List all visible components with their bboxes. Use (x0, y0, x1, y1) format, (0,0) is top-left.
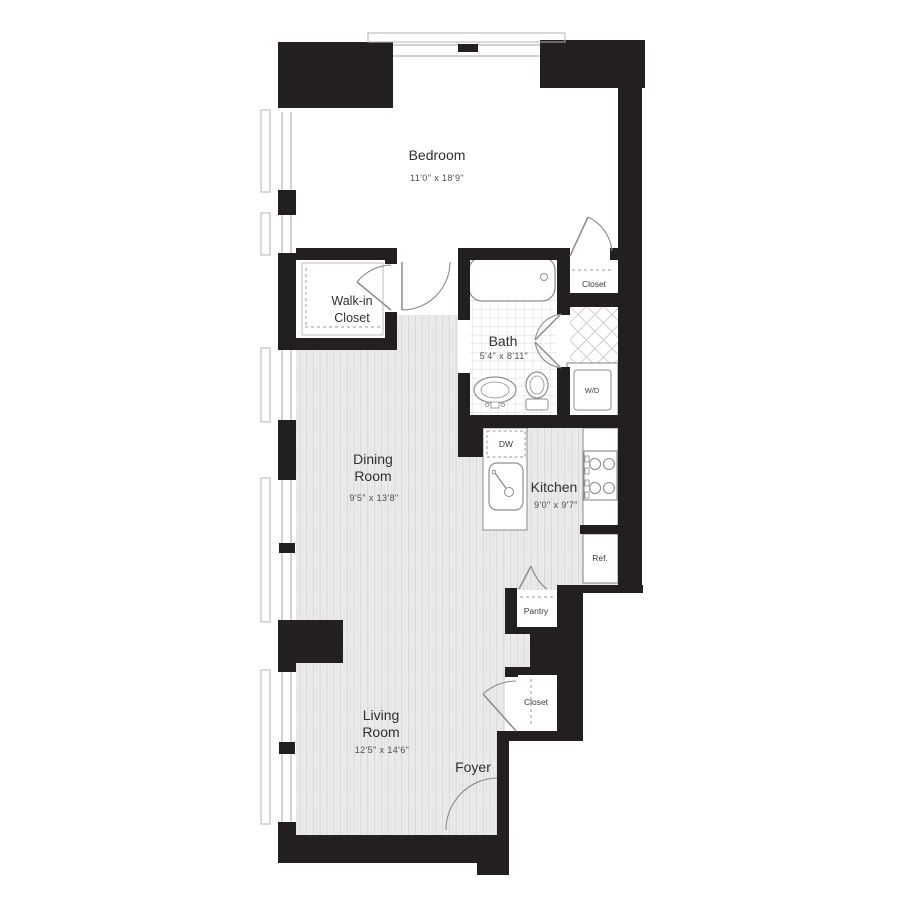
stove-icon (584, 451, 617, 500)
refrigerator-label: Ref. (592, 553, 608, 563)
bedroom-label: Bedroom (409, 147, 466, 163)
kitchen-label: Kitchen (531, 479, 578, 495)
left-window-3 (261, 348, 291, 422)
bathtub-icon (469, 257, 555, 301)
window-mullion (279, 742, 295, 754)
dining-label-2: Room (354, 468, 391, 484)
pantry-label: Pantry (524, 606, 549, 616)
left-window-5 (261, 670, 295, 824)
left-window-4 (261, 478, 295, 622)
bedroom-door (402, 262, 450, 310)
living-dims: 12'5" x 14'6" (355, 745, 410, 755)
left-window-2 (261, 213, 291, 255)
window-mullion (279, 543, 295, 553)
walk-in-closet-label-2: Closet (334, 311, 370, 325)
foyer-label: Foyer (455, 759, 491, 775)
dining-dims: 9'5" x 13'8" (349, 493, 398, 503)
dishwasher-label: DW (499, 439, 513, 449)
living-label-2: Room (362, 724, 399, 740)
bath-dims: 5'4" x 8'11" (480, 351, 529, 361)
dining-label-1: Dining (353, 451, 393, 467)
walk-in-closet-label-1: Walk-in (331, 294, 372, 308)
kitchen-dims: 9'0" x 9'7" (534, 500, 578, 510)
bedroom-dims: 11'0" x 18'9" (410, 173, 464, 183)
washer-dryer-label: W/D (585, 386, 600, 395)
top-window-mullion (458, 44, 478, 52)
laundry-nook (567, 307, 618, 416)
toilet-icon (526, 372, 548, 410)
bath-label: Bath (489, 333, 518, 349)
kitchen-sink-icon (489, 463, 523, 510)
bedroom-closet-door (570, 217, 612, 256)
living-label-1: Living (363, 707, 400, 723)
left-window-1 (261, 110, 291, 192)
bedroom-closet-label: Closet (582, 279, 607, 289)
entry-closet-label: Closet (524, 697, 549, 707)
top-window (368, 33, 565, 56)
floor-plan-page: Bedroom 11'0" x 18'9" Walk-in Closet Bat… (0, 0, 900, 900)
floor-plan-drawing: Bedroom 11'0" x 18'9" Walk-in Closet Bat… (0, 0, 900, 900)
